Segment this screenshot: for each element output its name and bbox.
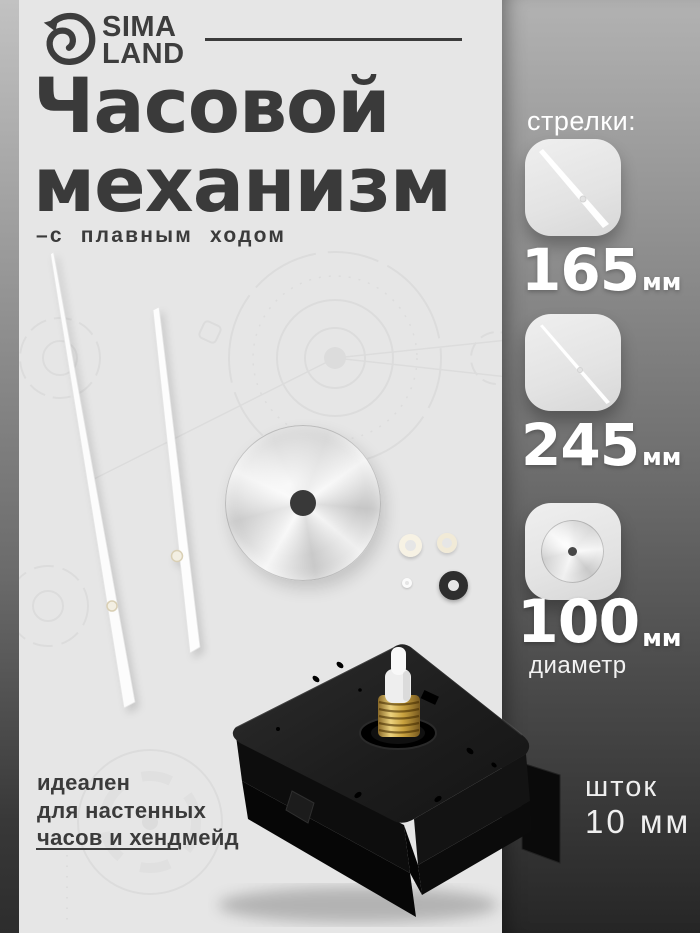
hour-hand-hole bbox=[172, 551, 183, 562]
clock-mechanism-photo bbox=[208, 633, 568, 933]
rubber-grommet bbox=[439, 571, 468, 600]
minute-hand-photo bbox=[51, 252, 136, 708]
minute-hand-hole bbox=[107, 601, 117, 611]
dial-disc-icon bbox=[541, 520, 604, 583]
washer-medium bbox=[437, 533, 457, 553]
spec-badge-hand-245 bbox=[525, 314, 621, 411]
header-divider-line bbox=[205, 38, 462, 41]
dial-disc-icon-center bbox=[568, 547, 577, 556]
product-title-line1: Часовой bbox=[33, 66, 451, 145]
product-subtitle: –с плавным ходом bbox=[36, 224, 286, 248]
washer-small bbox=[402, 578, 412, 588]
spec-value-165: 165 мм bbox=[521, 244, 681, 296]
dial-disc-photo bbox=[225, 425, 381, 581]
spec-value-245: 245 мм bbox=[521, 419, 681, 471]
spec-number: 245 bbox=[521, 419, 639, 471]
spec-value-100: 100 мм bbox=[517, 596, 681, 648]
spec-unit: мм bbox=[642, 626, 681, 650]
spec-unit: мм bbox=[642, 445, 681, 469]
spec-badge-dial-100 bbox=[525, 503, 621, 600]
stem-spec: шток 10 мм bbox=[585, 772, 691, 839]
footer-underline bbox=[36, 848, 178, 850]
clock-hands-photo bbox=[25, 240, 215, 715]
brand-name: SIMA LAND bbox=[102, 14, 185, 68]
spec-unit: мм bbox=[642, 270, 681, 294]
product-card: SIMA LAND Часовой механизм –с плавным хо… bbox=[0, 0, 700, 933]
product-title-line2: механизм bbox=[33, 145, 451, 224]
spec-note-diameter: диаметр bbox=[529, 652, 627, 680]
spec-number: 100 bbox=[517, 596, 639, 648]
stem-value: 10 мм bbox=[585, 805, 691, 839]
washer-large bbox=[399, 534, 422, 557]
product-title: Часовой механизм bbox=[33, 66, 451, 224]
left-edge-gradient bbox=[0, 0, 19, 933]
stem-label: шток bbox=[585, 772, 691, 802]
clock-hand-icon bbox=[525, 139, 621, 236]
spec-number: 165 bbox=[521, 244, 639, 296]
dial-disc-center-hole bbox=[290, 490, 316, 516]
brand-name-line1: SIMA bbox=[102, 14, 185, 41]
mechanism-shadow bbox=[218, 887, 498, 923]
clock-hand-icon bbox=[525, 314, 621, 411]
hour-hand-photo bbox=[153, 307, 200, 653]
specs-heading: стрелки: bbox=[527, 106, 636, 137]
spec-badge-hand-165 bbox=[525, 139, 621, 236]
